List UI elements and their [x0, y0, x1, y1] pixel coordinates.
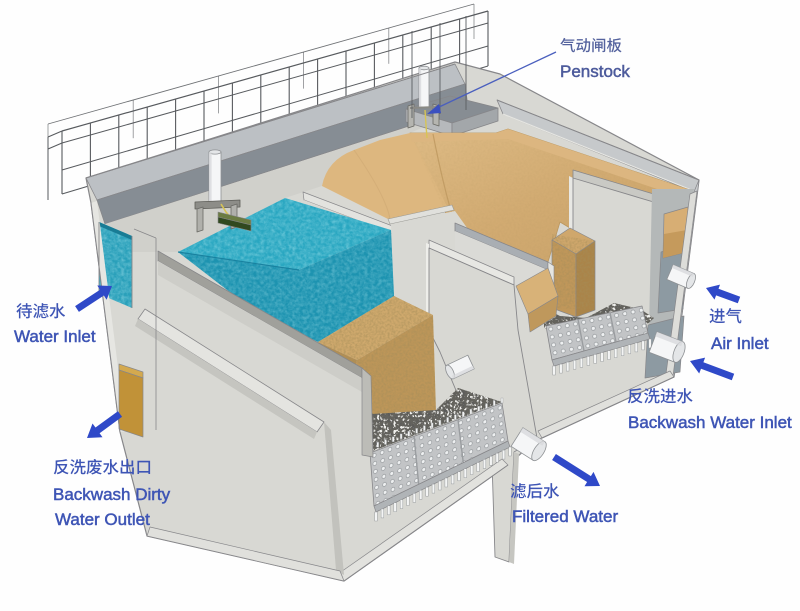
svg-text:Water Outlet: Water Outlet: [55, 510, 150, 529]
svg-text:Water Inlet: Water Inlet: [14, 327, 96, 346]
svg-text:Air Inlet: Air Inlet: [711, 334, 769, 353]
svg-text:Penstock: Penstock: [560, 62, 630, 81]
svg-text:Backwash Water Inlet: Backwash Water Inlet: [628, 413, 792, 432]
svg-text:Filtered Water: Filtered Water: [512, 507, 618, 526]
svg-text:Backwash Dirty: Backwash Dirty: [53, 485, 171, 504]
